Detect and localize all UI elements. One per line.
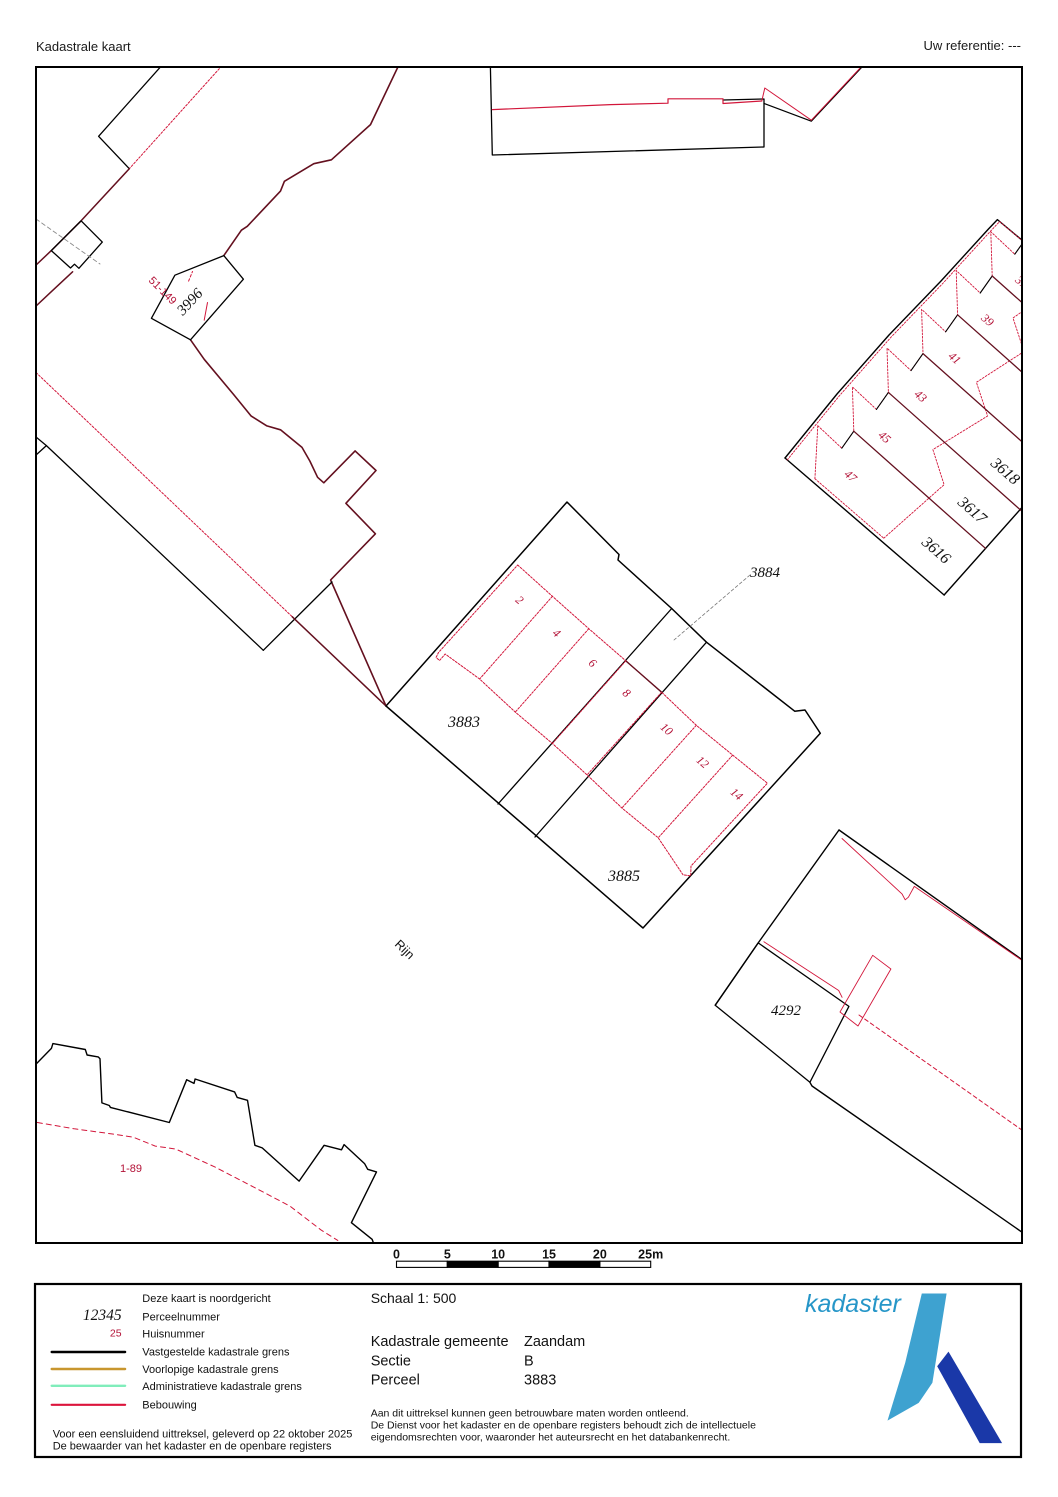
svg-text:De bewaarder van het kadaster: De bewaarder van het kadaster en de open… xyxy=(53,1441,332,1453)
svg-text:kadaster: kadaster xyxy=(805,1290,903,1318)
svg-text:25: 25 xyxy=(110,1328,122,1340)
svg-text:Schaal 1: 500: Schaal 1: 500 xyxy=(371,1290,457,1306)
svg-text:Administratieve kadastrale gre: Administratieve kadastrale grens xyxy=(142,1381,302,1393)
svg-text:10: 10 xyxy=(491,1248,505,1262)
svg-text:Perceel: Perceel xyxy=(371,1373,420,1389)
svg-text:B: B xyxy=(524,1354,534,1370)
svg-text:Vastgestelde kadastrale grens: Vastgestelde kadastrale grens xyxy=(142,1347,290,1359)
svg-text:Aan dit uittreksel kunnen geen: Aan dit uittreksel kunnen geen betrouwba… xyxy=(371,1408,689,1420)
svg-text:Uw referentie: ---: Uw referentie: --- xyxy=(923,38,1021,53)
svg-text:4292: 4292 xyxy=(771,1003,802,1019)
svg-text:Voorlopige kadastrale grens: Voorlopige kadastrale grens xyxy=(142,1364,279,1376)
svg-text:De Dienst voor het kadaster en: De Dienst voor het kadaster en de openba… xyxy=(371,1420,756,1432)
svg-text:Zaandam: Zaandam xyxy=(524,1334,585,1350)
svg-text:3883: 3883 xyxy=(447,714,480,731)
svg-text:15: 15 xyxy=(542,1248,556,1262)
svg-text:5: 5 xyxy=(444,1248,451,1262)
svg-text:Bebouwing: Bebouwing xyxy=(142,1400,196,1412)
svg-text:0: 0 xyxy=(393,1248,400,1262)
svg-text:3883: 3883 xyxy=(524,1373,556,1389)
svg-text:Kadastrale gemeente: Kadastrale gemeente xyxy=(371,1334,509,1350)
svg-text:25m: 25m xyxy=(638,1248,663,1262)
svg-text:3885: 3885 xyxy=(607,868,640,885)
svg-text:Sectie: Sectie xyxy=(371,1354,411,1370)
svg-text:3884: 3884 xyxy=(749,565,781,581)
svg-text:Voor een eensluidend uittrekse: Voor een eensluidend uittreksel, gelever… xyxy=(53,1429,353,1441)
svg-text:20: 20 xyxy=(593,1248,607,1262)
svg-text:Huisnummer: Huisnummer xyxy=(142,1329,205,1341)
svg-text:1-89: 1-89 xyxy=(120,1163,142,1175)
svg-text:Deze kaart is noordgericht: Deze kaart is noordgericht xyxy=(142,1293,270,1305)
svg-text:Perceelnummer: Perceelnummer xyxy=(142,1312,220,1324)
svg-text:12345: 12345 xyxy=(83,1307,122,1324)
svg-text:eigendomsrechten voor, waarond: eigendomsrechten voor, waaronder het aut… xyxy=(371,1432,731,1444)
svg-text:Kadastrale kaart: Kadastrale kaart xyxy=(36,39,131,54)
